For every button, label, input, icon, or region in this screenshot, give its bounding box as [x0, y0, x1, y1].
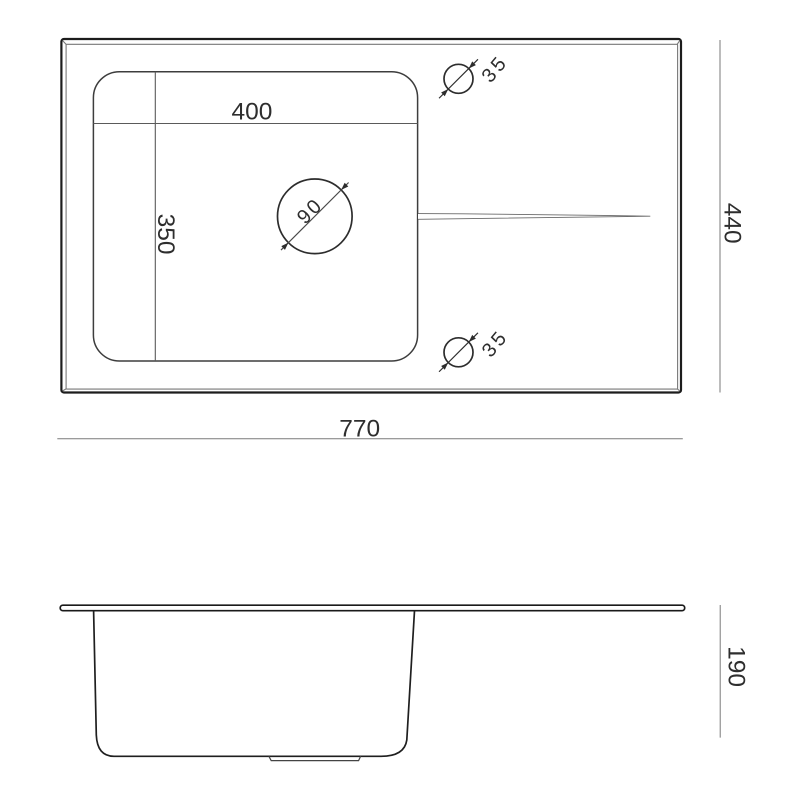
- svg-text:350: 350: [152, 214, 179, 255]
- svg-text:190: 190: [723, 646, 750, 687]
- svg-text:440: 440: [719, 203, 746, 244]
- svg-text:400: 400: [232, 99, 273, 126]
- svg-text:770: 770: [339, 416, 380, 443]
